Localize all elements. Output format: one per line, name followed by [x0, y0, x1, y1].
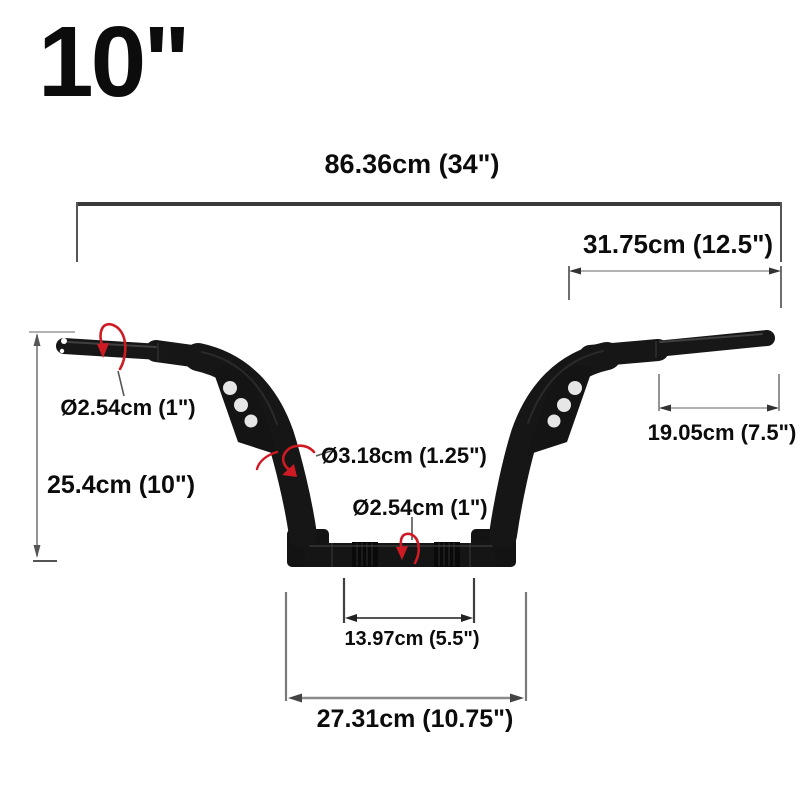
dim-rise-height-line [29, 332, 75, 561]
dim-top-width-label: 31.75cm (12.5") [583, 230, 773, 260]
dim-right-grip-length-line [659, 374, 779, 412]
dim-top-width-line [569, 266, 781, 308]
dim-left-grip-diameter-label: Ø2.54cm (1") [60, 395, 195, 420]
dim-clamp-width-line [344, 578, 474, 623]
dim-rise-height-label: 25.4cm (10") [47, 471, 195, 500]
dim-center-diameter-label: Ø2.54cm (1") [352, 495, 487, 520]
dim-riser-diameter-label: Ø3.18cm (1.25") [321, 443, 487, 468]
handlebar-dimension-diagram: 10" 86.36cm (34") 31.75cm (12.5") Ø2.54c… [0, 0, 800, 800]
dim-base-width-label: 27.31cm (10.75") [317, 705, 514, 734]
dim-clamp-width-label: 13.97cm (5.5") [344, 628, 479, 651]
dim-overall-width-label: 86.36cm (34") [325, 149, 500, 180]
rise-size-label: 10" [38, 12, 188, 112]
dim-right-grip-length-label: 19.05cm (7.5") [648, 420, 797, 445]
